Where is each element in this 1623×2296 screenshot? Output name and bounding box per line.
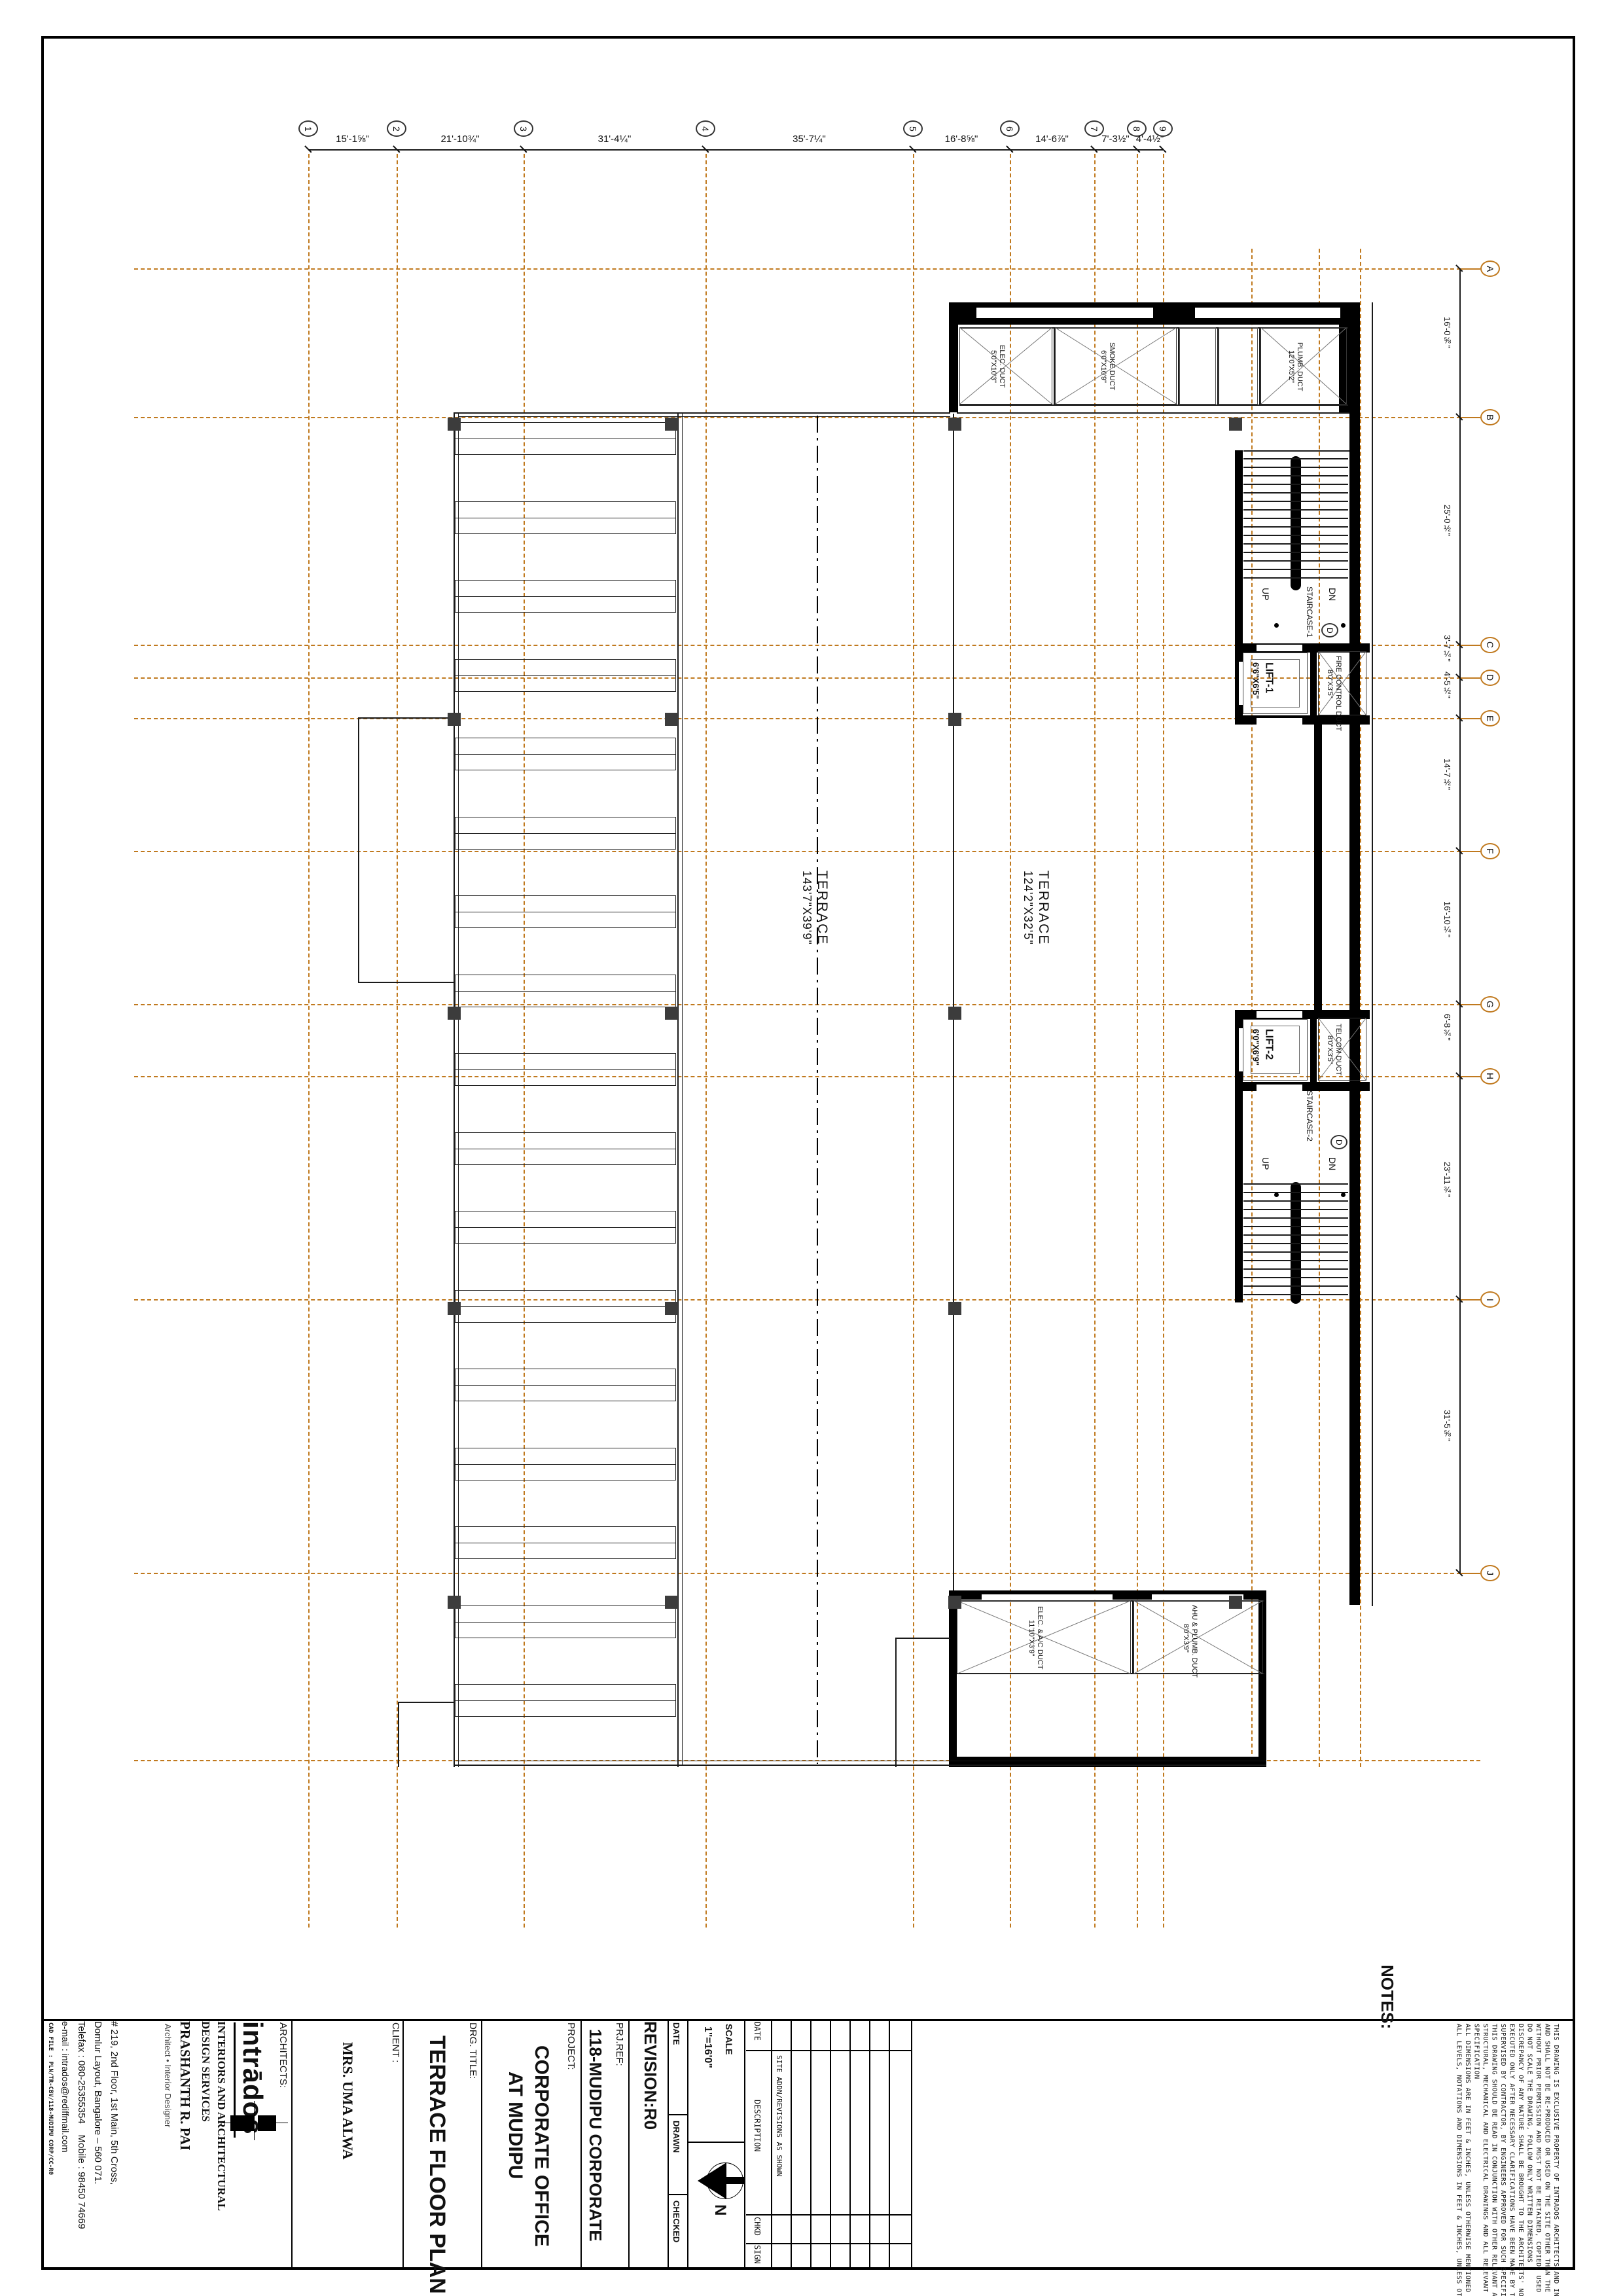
pergola-bar xyxy=(455,817,676,850)
column-marker xyxy=(1229,418,1242,431)
pergola-bar-line xyxy=(455,754,675,755)
grid-bubble-label: B xyxy=(1485,414,1495,420)
pergola-bar-line xyxy=(455,1700,675,1701)
grid-bubble-top: 5 xyxy=(903,120,923,137)
grid-bubble-top: 3 xyxy=(514,120,533,137)
grid-bubble-label: J xyxy=(1485,1571,1495,1575)
grid-bubble-right: E xyxy=(1480,710,1500,726)
plan-line xyxy=(895,1638,950,1639)
plan-line xyxy=(1243,450,1349,452)
grid-bubble-top: 1 xyxy=(298,120,318,137)
column-marker xyxy=(448,1596,461,1609)
pergola-bar xyxy=(455,501,676,534)
dimension-text-top: 4'-4½" xyxy=(1120,134,1179,145)
wall-opening xyxy=(1257,1085,1302,1091)
grid-bubble-top: 9 xyxy=(1153,120,1173,137)
column-marker xyxy=(948,1302,961,1315)
wall xyxy=(1314,725,1322,1011)
pergola-bar xyxy=(455,1526,676,1559)
plan-line xyxy=(398,1702,399,1767)
stair-tread xyxy=(1243,1251,1348,1253)
wall-opening xyxy=(1257,718,1302,725)
grid-bubble-leader xyxy=(1461,268,1480,270)
plan-line xyxy=(454,412,950,414)
lift-label: LIFT-1 xyxy=(1263,662,1275,693)
lift-dims: 6'6"X6'5" xyxy=(1251,662,1261,699)
pergola-bar xyxy=(455,895,676,928)
lift-label: LIFT-2 xyxy=(1263,1029,1275,1060)
shaft-room xyxy=(1179,327,1216,404)
grid-bubble-label: F xyxy=(1485,848,1495,854)
grid-bubble-label: 3 xyxy=(518,126,529,132)
stair-tread xyxy=(1243,1294,1348,1295)
stair-tread xyxy=(1243,1200,1348,1202)
grid-bubble-label: A xyxy=(1485,266,1495,272)
pergola-bar-line xyxy=(455,912,675,912)
pergola-bar xyxy=(455,1211,676,1244)
pergola-bar xyxy=(455,1290,676,1323)
pergola-bar-line xyxy=(455,833,675,834)
stair-tread xyxy=(1243,560,1348,562)
grid-bubble-right: G xyxy=(1480,996,1500,1013)
stair-tread xyxy=(1243,526,1348,528)
plan-line xyxy=(358,982,455,983)
plan-line xyxy=(677,412,679,1767)
grid-bubble-leader xyxy=(1461,851,1480,852)
dimension-text-top: 15'-1⅝" xyxy=(323,134,382,145)
duct-room: TELCOM DUCT8'0"X3'5" xyxy=(1318,1018,1366,1081)
plan-line xyxy=(1372,302,1373,1606)
duct-room-label: ELEC. & A/C DUCT xyxy=(1036,1605,1044,1671)
column-marker xyxy=(665,1007,678,1020)
plan-line xyxy=(398,1702,455,1703)
duct-room-dims: 8'0"X3'5" xyxy=(1326,1022,1334,1077)
grid-bubble-label: E xyxy=(1485,715,1495,721)
grid-bubble-right: D xyxy=(1480,670,1500,686)
wall xyxy=(1235,715,1370,725)
grid-bubble-label: C xyxy=(1485,641,1495,648)
stair-tread xyxy=(1243,543,1348,545)
stair-dn-label: DN xyxy=(1327,1157,1338,1170)
column-marker xyxy=(448,418,461,431)
stair-tread xyxy=(1243,484,1348,485)
grid-bubble-label: D xyxy=(1485,674,1495,681)
lift-car: LIFT-26'0"X6'9" xyxy=(1251,1026,1300,1074)
wall-opening xyxy=(1257,1011,1302,1018)
stair-tread xyxy=(1243,577,1348,579)
pergola-bar-line xyxy=(455,1069,675,1070)
pergola-bar-line xyxy=(455,675,675,676)
plan-line xyxy=(358,717,455,719)
grid-bubble-label: G xyxy=(1485,1001,1495,1008)
staircase-label: STAIRCASE-2 xyxy=(1305,1090,1314,1141)
stair-tread xyxy=(1243,1243,1348,1244)
grid-bubble-leader xyxy=(1461,677,1480,679)
stair-tread xyxy=(1243,535,1348,536)
floor-plan: 115'-1⅝"221'-10¾"331'-4¼"435'-7¼"516'-8⅝… xyxy=(0,0,1623,2296)
duct-room-label: AHU & PLUMB. DUCT xyxy=(1190,1605,1198,1671)
lift-car: LIFT-16'6"X6'5" xyxy=(1251,659,1300,708)
stair-tread xyxy=(1243,467,1348,468)
dimension-line-right xyxy=(1459,268,1461,1573)
grid-line-horizontal xyxy=(134,268,1480,270)
plan-line xyxy=(458,416,950,417)
stair-tread xyxy=(1243,1268,1348,1270)
grid-line-vertical xyxy=(913,154,914,1928)
drawing-sheet: ARCHITECTS: intrādos INTERIORS AND ARCHI… xyxy=(0,0,1623,2296)
plan-line xyxy=(454,412,455,1767)
grid-bubble-top: 6 xyxy=(1000,120,1020,137)
wall xyxy=(1310,1018,1317,1082)
stair-tread xyxy=(1243,501,1348,502)
column-marker xyxy=(665,418,678,431)
pergola-bar xyxy=(455,1684,676,1717)
stair-tread xyxy=(1243,1285,1348,1287)
pergola-bar-line xyxy=(455,1149,675,1149)
grid-bubble-leader xyxy=(1461,718,1480,719)
dimension-text-right: 23'-11¾" xyxy=(1442,1162,1452,1197)
dimension-text-right: 31'-5⅝" xyxy=(1442,1410,1452,1441)
duct-room: SMOKE DUCT6'0"X10'9" xyxy=(1055,327,1177,404)
grid-bubble-right: C xyxy=(1480,637,1500,653)
duct-room-dims: 12'0"X5'2" xyxy=(1287,332,1295,401)
stair-tread xyxy=(1243,1260,1348,1261)
grid-line-vertical xyxy=(397,154,398,1928)
wall xyxy=(949,1590,957,1767)
wall-opening xyxy=(1195,308,1340,318)
wall xyxy=(1349,302,1360,1605)
wall xyxy=(1310,651,1317,715)
duct-room-dims: 8'0"X3'5" xyxy=(1326,656,1334,712)
column-marker xyxy=(665,713,678,726)
grid-bubble-label: 5 xyxy=(908,126,918,132)
stair-divider-wall xyxy=(1291,456,1301,590)
plan-line xyxy=(458,412,459,1767)
grid-bubble-label: H xyxy=(1485,1073,1495,1079)
stair-tread xyxy=(1243,1217,1348,1219)
dimension-text-top: 31'-4¼" xyxy=(585,134,644,145)
pergola-bar xyxy=(455,580,676,613)
duct-room-label: TELCOM DUCT xyxy=(1334,1022,1342,1077)
centerline xyxy=(817,416,818,1764)
plan-line xyxy=(895,1638,897,1767)
stair-tread xyxy=(1243,518,1348,519)
pergola-bar-line xyxy=(455,518,675,518)
grid-line-vertical xyxy=(308,154,310,1928)
stair-tread xyxy=(1243,1192,1348,1193)
stair-dn-label: DN xyxy=(1327,588,1338,601)
grid-line-horizontal xyxy=(134,1299,1480,1300)
dimension-text-top: 16'-8⅝" xyxy=(932,134,991,145)
grid-bubble-label: D xyxy=(1334,1139,1344,1145)
shaft-room xyxy=(1219,327,1258,404)
column-marker xyxy=(948,713,961,726)
duct-room-label: FIRE CONTROL DUCT xyxy=(1334,656,1342,712)
duct-room: PLUMB. DUCT12'0"X5'2" xyxy=(1260,327,1347,404)
grid-bubble-top: 4 xyxy=(696,120,715,137)
stair-up-label: UP xyxy=(1260,1157,1271,1170)
stair-direction-dot xyxy=(1274,1193,1279,1197)
grid-line-vertical xyxy=(1360,249,1361,1767)
duct-room: ELEC. & A/C DUCT11'10"X3'9" xyxy=(957,1600,1131,1674)
pergola-bar-line xyxy=(455,991,675,992)
grid-bubble-leader xyxy=(1461,1299,1480,1300)
grid-bubble-right: J xyxy=(1480,1565,1500,1581)
stair-tread xyxy=(1243,492,1348,493)
plan-line xyxy=(454,1765,1266,1766)
dimension-text-right: 6'-8¾" xyxy=(1442,1014,1452,1041)
dimension-line-top xyxy=(308,149,1163,151)
grid-line-vertical xyxy=(705,154,707,1928)
grid-bubble-leader xyxy=(1461,417,1480,418)
grid-bubble-right: A xyxy=(1480,260,1500,277)
stair-direction-dot xyxy=(1274,623,1279,628)
stair-tread xyxy=(1243,475,1348,476)
plan-line xyxy=(959,404,1348,406)
pergola-bar xyxy=(455,1605,676,1638)
plan-line xyxy=(682,412,683,1766)
wall-opening xyxy=(1257,645,1302,651)
stair-tread xyxy=(1243,1277,1348,1278)
stair-tread xyxy=(1243,509,1348,511)
pergola-bar-line xyxy=(455,596,675,597)
pergola-bar xyxy=(455,659,676,692)
plan-line xyxy=(358,717,359,983)
dimension-text-right: 16'-10¼" xyxy=(1442,901,1452,937)
column-marker xyxy=(448,713,461,726)
grid-line-horizontal xyxy=(134,1004,1480,1005)
column-marker xyxy=(665,1596,678,1609)
stair-tread xyxy=(1243,1234,1348,1236)
dimension-text-right: 14'-7½" xyxy=(1442,759,1452,790)
plan-line xyxy=(456,1761,1266,1761)
grid-bubble-right: F xyxy=(1480,843,1500,859)
grid-bubble-top: 2 xyxy=(387,120,406,137)
terrace-dims: 143'7"X39'9" xyxy=(800,870,813,945)
column-marker xyxy=(1229,1596,1242,1609)
grid-bubble-label: 2 xyxy=(391,126,402,132)
stair-direction-dot xyxy=(1341,1193,1346,1197)
stair-up-label: UP xyxy=(1260,588,1271,600)
pergola-bar xyxy=(455,975,676,1007)
dimension-text-right: 4'-5½" xyxy=(1442,672,1452,698)
dimension-text-top: 14'-6⅞" xyxy=(1023,134,1082,145)
stair-direction-dot xyxy=(1341,623,1346,628)
duct-room-label: PLUMB. DUCT xyxy=(1296,332,1304,401)
column-marker xyxy=(448,1007,461,1020)
grid-bubble-label: 7 xyxy=(1089,126,1099,132)
duct-room-label: ELEC. DUCT xyxy=(998,332,1006,401)
duct-room: AHU & PLUMB. DUCT8'0"X3'9" xyxy=(1133,1600,1263,1674)
pergola-bar-line xyxy=(455,1227,675,1228)
terrace-dims: 124'2"X32'5" xyxy=(1021,870,1035,945)
pergola-bar xyxy=(455,1053,676,1086)
dimension-text-top: 35'-7¼" xyxy=(780,134,839,145)
wall-opening xyxy=(976,308,1153,318)
grid-line-vertical xyxy=(1251,249,1253,1767)
grid-bubble-label: 4 xyxy=(700,126,711,132)
grid-bubble-leader xyxy=(1461,1076,1480,1077)
column-marker xyxy=(948,1596,961,1609)
grid-bubble-leader xyxy=(1461,1573,1480,1574)
dimension-text-right: 25'-0½" xyxy=(1442,505,1452,536)
pergola-bar-line xyxy=(455,1385,675,1386)
pergola-bar-line xyxy=(455,1464,675,1465)
pergola-bar-line xyxy=(455,439,675,439)
grid-bubble-right: I xyxy=(1480,1291,1500,1308)
stair-tread xyxy=(1243,552,1348,553)
wall xyxy=(1235,1082,1370,1091)
pergola-bar xyxy=(455,422,676,455)
terrace-label: TERRACE xyxy=(814,870,830,945)
stair-tread xyxy=(1243,1183,1348,1185)
pergola-bar xyxy=(455,1369,676,1401)
grid-line-horizontal xyxy=(134,417,1480,418)
wall xyxy=(949,302,958,412)
pergola-bar xyxy=(455,1132,676,1165)
duct-room-dims: 11'10"X3'9" xyxy=(1027,1605,1035,1671)
lift-dims: 6'0"X6'9" xyxy=(1251,1029,1261,1066)
grid-bubble-right: H xyxy=(1480,1068,1500,1085)
plan-grid-bubble: D xyxy=(1330,1135,1347,1149)
stair-tread xyxy=(1243,1209,1348,1210)
duct-room-dims: 5'0"X10'3" xyxy=(990,332,997,401)
grid-bubble-label: 1 xyxy=(303,126,313,132)
stair-tread xyxy=(1243,458,1348,459)
grid-line-vertical xyxy=(524,154,525,1928)
duct-room-dims: 8'0"X3'9" xyxy=(1182,1605,1190,1671)
dimension-text-right: 3'-7¼" xyxy=(1442,635,1452,662)
staircase-label: STAIRCASE-1 xyxy=(1305,586,1314,637)
grid-bubble-label: 8 xyxy=(1132,126,1142,132)
grid-line-horizontal xyxy=(134,851,1480,852)
wall xyxy=(1235,1091,1243,1302)
column-marker xyxy=(948,1007,961,1020)
pergola-bar xyxy=(455,738,676,770)
column-marker xyxy=(665,1302,678,1315)
pergola-bar-line xyxy=(455,1306,675,1307)
pergola-bar-line xyxy=(455,1543,675,1543)
wall xyxy=(1235,450,1243,647)
column-marker xyxy=(448,1302,461,1315)
dimension-text-top: 21'-10¾" xyxy=(431,134,490,145)
column-marker xyxy=(948,418,961,431)
grid-bubble-leader xyxy=(1461,645,1480,646)
wall-opening xyxy=(982,1594,1113,1600)
duct-room-label: SMOKE DUCT xyxy=(1108,332,1116,401)
grid-line-horizontal xyxy=(134,1573,1480,1574)
stair-tread xyxy=(1243,1226,1348,1227)
grid-bubble-label: 6 xyxy=(1005,126,1015,132)
grid-bubble-right: B xyxy=(1480,409,1500,425)
plan-line xyxy=(957,412,1349,414)
duct-room: FIRE CONTROL DUCT8'0"X3'5" xyxy=(1318,651,1366,715)
stair-tread xyxy=(1243,569,1348,570)
plan-line xyxy=(953,414,954,1590)
plan-grid-bubble: D xyxy=(1321,623,1338,637)
grid-bubble-label: D xyxy=(1325,628,1334,634)
terrace-label: TERRACE xyxy=(1035,870,1051,945)
grid-bubble-label: I xyxy=(1485,1299,1495,1301)
dimension-text-right: 16'-0⅝" xyxy=(1442,317,1452,348)
pergola-bar xyxy=(455,1448,676,1480)
duct-room: ELEC. DUCT5'0"X10'3" xyxy=(959,327,1052,404)
duct-room-dims: 6'0"X10'9" xyxy=(1099,332,1107,401)
grid-bubble-leader xyxy=(1461,1004,1480,1005)
grid-bubble-label: 9 xyxy=(1158,126,1168,132)
pergola-bar-line xyxy=(455,1622,675,1623)
